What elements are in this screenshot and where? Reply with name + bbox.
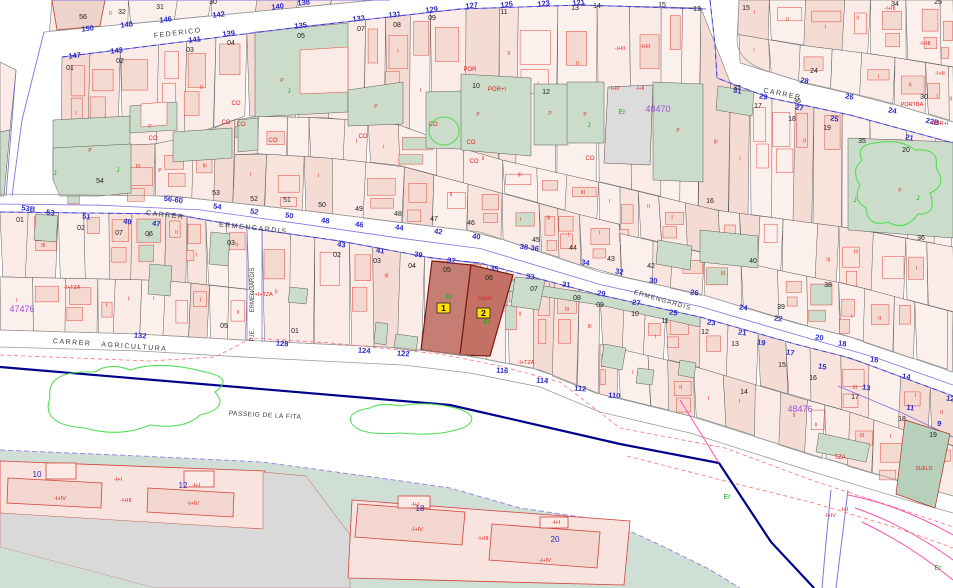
svg-text:TZA: TZA [834,455,845,461]
svg-text:I: I [153,296,154,302]
svg-text:122: 122 [397,348,410,358]
svg-text:18: 18 [788,116,796,123]
svg-text:-I+III: -I+III [615,46,625,52]
svg-text:-I+III: -I+III [884,6,896,12]
svg-text:142: 142 [212,9,226,19]
svg-text:50: 50 [285,210,295,220]
svg-text:16: 16 [706,198,714,205]
svg-text:CO: CO [429,122,438,128]
svg-text:I: I [739,157,740,163]
svg-text:32: 32 [118,9,126,16]
svg-text:112: 112 [574,383,587,393]
svg-text:16: 16 [870,354,880,364]
svg-text:124: 124 [358,345,372,355]
svg-text:27: 27 [632,297,642,307]
svg-text:30: 30 [649,275,659,285]
svg-text:17: 17 [786,347,796,357]
svg-text:52: 52 [250,196,258,203]
svg-text:-I+III: -I+III [120,498,132,504]
svg-text:04: 04 [227,40,235,47]
svg-text:Er: Er [619,109,627,116]
svg-text:39: 39 [777,304,785,311]
svg-text:-I+TZA: -I+TZA [518,360,535,366]
svg-text:37: 37 [733,85,741,92]
svg-text:I: I [655,334,656,340]
svg-text:13: 13 [571,5,579,12]
svg-text:I: I [936,94,937,100]
svg-text:III: III [203,164,207,170]
svg-text:III: III [826,258,830,264]
svg-text:III: III [588,324,592,330]
svg-text:-I+I: -I+I [192,483,201,489]
svg-text:20: 20 [815,332,825,342]
svg-text:35: 35 [858,138,866,145]
svg-text:30: 30 [209,0,217,6]
svg-text:22: 22 [774,313,784,323]
svg-text:1: 1 [441,303,446,313]
svg-text:128: 128 [276,338,289,348]
svg-text:01: 01 [16,217,24,224]
svg-text:09: 09 [428,15,436,22]
svg-text:-I+I: -I+I [114,477,123,483]
svg-text:13: 13 [731,341,739,348]
svg-text:I: I [16,298,17,304]
svg-text:-I+I: -I+I [552,520,561,526]
svg-text:135: 135 [294,20,308,30]
svg-text:45: 45 [532,237,540,244]
svg-text:III: III [384,274,388,280]
svg-text:-I+I: -I+I [411,502,420,508]
svg-text:Er: Er [724,494,732,501]
svg-text:ERMENGARDIS: ERMENGARDIS [250,268,256,313]
svg-text:POR+I: POR+I [932,121,949,127]
svg-text:III: III [860,433,864,439]
svg-text:07: 07 [115,230,123,237]
svg-text:II: II [647,204,650,210]
svg-text:II: II [507,51,510,57]
svg-text:J: J [116,167,119,174]
svg-text:II: II [237,310,240,316]
svg-text:02: 02 [333,252,341,259]
svg-text:25: 25 [830,113,840,123]
svg-text:139: 139 [222,28,236,38]
svg-text:140: 140 [271,1,285,11]
svg-text:CO: CO [237,122,246,128]
svg-text:III: III [565,307,569,313]
svg-text:03: 03 [373,258,381,265]
svg-text:25: 25 [934,0,942,6]
svg-text:19: 19 [757,337,767,347]
svg-text:49: 49 [123,216,133,226]
svg-text:18: 18 [838,338,848,348]
svg-text:13: 13 [693,6,701,13]
svg-text:141: 141 [188,34,202,44]
svg-text:28: 28 [800,75,810,85]
svg-text:III: III [136,164,140,170]
svg-text:II: II [576,61,579,67]
svg-text:06: 06 [485,275,493,282]
svg-text:21: 21 [905,132,915,142]
svg-text:-I+IV: -I+IV [411,527,423,533]
svg-text:I: I [753,47,754,53]
svg-text:I: I [632,370,633,376]
svg-text:46: 46 [467,220,475,227]
svg-text:I: I [915,393,916,399]
svg-text:114: 114 [536,375,550,385]
svg-text:43: 43 [607,256,615,263]
svg-text:29: 29 [759,91,769,101]
svg-text:11: 11 [906,403,915,413]
svg-text:-I+III: -I+III [640,44,650,50]
svg-text:19: 19 [823,125,831,132]
svg-text:37: 37 [447,255,457,265]
svg-text:I: I [200,298,201,304]
svg-text:07: 07 [530,286,538,293]
svg-text:I: I [318,174,319,180]
svg-text:III: III [41,243,45,249]
svg-text:08: 08 [393,22,401,29]
svg-text:I: I [250,172,251,178]
svg-text:40: 40 [472,231,482,241]
svg-text:20: 20 [902,147,910,154]
svg-text:129: 129 [425,4,439,14]
svg-text:15: 15 [742,5,750,12]
svg-text:10: 10 [33,470,42,479]
svg-text:I: I [671,215,672,221]
svg-text:I: I [916,265,917,271]
svg-text:24: 24 [810,68,818,75]
svg-text:III: III [721,271,725,277]
svg-text:III: III [546,215,550,221]
svg-text:10: 10 [631,311,639,318]
svg-text:J: J [916,195,919,202]
svg-text:II: II [803,139,806,145]
svg-text:14: 14 [593,3,601,10]
svg-text:POR+I: POR+I [488,87,507,93]
svg-text:42: 42 [434,226,444,236]
svg-text:48476: 48476 [787,404,812,414]
svg-text:19: 19 [929,432,937,439]
svg-text:131: 131 [388,9,402,19]
svg-text:54: 54 [96,178,104,185]
svg-text:04: 04 [408,263,416,270]
svg-text:15: 15 [658,2,666,9]
svg-text:II: II [175,230,178,236]
svg-text:II: II [949,96,952,102]
svg-text:15: 15 [778,362,786,369]
svg-text:I: I [878,75,879,81]
svg-text:01: 01 [291,328,299,335]
svg-text:36: 36 [917,235,925,242]
svg-text:I: I [739,399,740,405]
svg-text:110: 110 [608,390,621,400]
svg-text:50: 50 [318,202,326,209]
svg-text:II: II [482,156,485,162]
svg-text:II: II [275,289,278,295]
svg-text:09: 09 [596,302,604,309]
svg-text:13: 13 [862,382,872,392]
svg-text:42: 42 [647,263,655,270]
svg-text:-I+IV: -I+IV [54,496,66,502]
svg-text:44: 44 [569,245,577,252]
svg-text:II: II [200,85,203,91]
svg-text:CO: CO [467,140,476,146]
svg-text:147: 147 [68,50,82,60]
svg-text:53: 53 [46,207,56,217]
svg-text:I: I [599,230,600,236]
svg-text:J: J [853,197,856,204]
svg-text:146: 146 [159,14,173,24]
svg-text:I: I [754,10,755,16]
svg-text:30: 30 [920,94,928,101]
svg-text:26: 26 [845,91,855,101]
svg-text:39: 39 [414,249,424,259]
svg-text:2: 2 [481,308,486,318]
svg-text:II: II [940,410,943,416]
svg-text:III: III [518,172,522,178]
svg-text:41: 41 [376,245,386,255]
svg-text:32: 32 [615,266,625,276]
svg-text:01: 01 [66,65,74,72]
svg-text:-I+III: -I+III [609,86,619,92]
svg-text:148: 148 [120,19,134,29]
svg-text:23: 23 [707,317,717,327]
svg-text:II: II [109,11,112,17]
svg-text:43: 43 [337,239,347,249]
svg-text:II: II [878,316,881,322]
svg-text:03: 03 [227,240,235,247]
svg-text:II: II [679,385,682,391]
svg-text:CO: CO [149,136,158,142]
svg-text:-I+III: -I+III [919,41,931,47]
svg-text:26: 26 [690,287,700,297]
svg-text:38: 38 [824,282,832,289]
svg-text:02: 02 [77,225,85,232]
svg-text:I: I [708,396,709,402]
svg-text:J: J [587,122,590,129]
svg-text:52: 52 [250,206,260,216]
svg-text:II: II [450,192,453,198]
svg-text:I: I [397,48,398,54]
svg-text:16: 16 [809,375,817,382]
svg-text:J: J [287,88,290,95]
svg-text:143: 143 [110,45,124,55]
svg-text:POR: POR [463,67,477,73]
svg-text:05: 05 [220,323,228,330]
svg-text:-I+I+TZA: -I+I+TZA [251,292,273,298]
svg-text:CO: CO [232,101,241,107]
svg-text:116: 116 [496,365,509,375]
svg-text:I+I: I+I [842,507,849,513]
svg-text:Er: Er [935,565,943,572]
svg-text:I: I [609,199,610,205]
svg-text:17: 17 [851,394,859,401]
svg-text:21: 21 [738,327,748,337]
svg-text:II: II [235,243,238,249]
svg-text:31: 31 [156,4,164,11]
svg-text:CO: CO [269,138,278,144]
svg-text:33: 33 [526,271,536,281]
svg-text:06: 06 [145,231,153,238]
svg-text:132: 132 [134,330,147,340]
svg-text:48: 48 [321,215,331,225]
svg-text:III: III [581,190,585,196]
svg-text:11: 11 [661,318,668,325]
svg-text:123: 123 [537,0,551,9]
svg-text:PORTBA: PORTBA [901,102,924,108]
svg-text:CO: CO [470,159,479,165]
svg-text:03: 03 [186,47,194,54]
svg-text:12: 12 [946,393,953,403]
svg-text:48470: 48470 [645,104,670,114]
svg-text:I: I [106,303,107,309]
svg-text:40: 40 [749,258,757,265]
svg-text:47: 47 [430,216,438,223]
svg-text:Er: Er [484,319,492,326]
svg-text:CO: CO [222,120,231,126]
svg-text:25: 25 [669,307,679,317]
svg-text:31: 31 [562,279,572,289]
svg-text:suelo: suelo [478,296,493,302]
svg-text:05: 05 [443,267,451,274]
svg-text:47: 47 [152,218,162,228]
svg-text:133: 133 [352,13,366,23]
svg-text:-I+II: -I+II [935,71,945,77]
svg-text:II: II [815,423,818,429]
svg-text:III: III [854,249,858,255]
svg-text:-I+IV: -I+IV [187,501,199,507]
svg-text:III: III [714,140,718,146]
svg-text:-I+III: -I+III [477,536,489,542]
svg-text:10: 10 [472,83,480,90]
svg-text:II: II [856,16,859,22]
svg-text:I: I [851,314,852,320]
svg-text:I: I [128,297,129,303]
svg-text:36: 36 [793,98,801,105]
svg-text:15: 15 [818,361,828,371]
svg-text:I: I [825,25,826,31]
svg-text:I: I [520,217,521,223]
svg-text:-I+IV: -I+IV [824,513,836,519]
svg-text:-I+IV: -I+IV [539,558,551,564]
svg-text:12: 12 [542,89,550,96]
svg-text:49: 49 [355,206,363,213]
svg-text:02: 02 [116,58,124,65]
svg-text:PJE.: PJE. [250,328,256,341]
svg-text:07: 07 [357,26,365,33]
svg-text:III: III [853,385,857,391]
svg-text:08: 08 [573,295,581,302]
svg-text:14: 14 [740,389,748,396]
svg-text:II: II [909,82,912,88]
svg-text:47476: 47476 [9,304,34,314]
svg-text:I: I [356,139,357,145]
svg-text:II: II [519,312,522,318]
svg-text:I: I [383,145,384,151]
svg-text:53: 53 [212,190,220,197]
svg-text:48: 48 [394,211,402,218]
svg-text:12: 12 [701,329,709,336]
svg-text:150: 150 [81,23,95,33]
svg-text:II: II [786,17,789,23]
svg-text:Er: Er [446,294,454,301]
svg-text:I: I [196,252,197,258]
svg-text:11: 11 [500,9,507,16]
svg-text:CO: CO [586,156,595,162]
svg-text:17: 17 [754,103,762,110]
svg-text:05: 05 [297,33,305,40]
svg-text:20: 20 [551,535,560,544]
svg-text:18: 18 [898,416,906,423]
svg-text:12: 12 [179,481,188,490]
svg-text:SUELO: SUELO [916,466,933,472]
svg-text:I: I [75,111,76,117]
svg-text:29: 29 [597,288,607,298]
svg-text:-I+II: -I+II [636,86,645,92]
svg-text:46: 46 [355,219,365,229]
svg-text:51: 51 [283,197,291,204]
svg-text:CO: CO [359,134,368,140]
svg-text:I: I [568,233,569,239]
svg-text:-I+TZA: -I+TZA [64,285,81,291]
svg-text:35: 35 [490,263,500,273]
svg-text:51: 51 [82,211,92,221]
svg-text:J: J [53,170,56,177]
svg-text:I: I [890,434,891,440]
svg-text:I: I [420,88,421,94]
svg-text:127: 127 [465,0,479,10]
svg-text:56: 56 [79,14,87,21]
